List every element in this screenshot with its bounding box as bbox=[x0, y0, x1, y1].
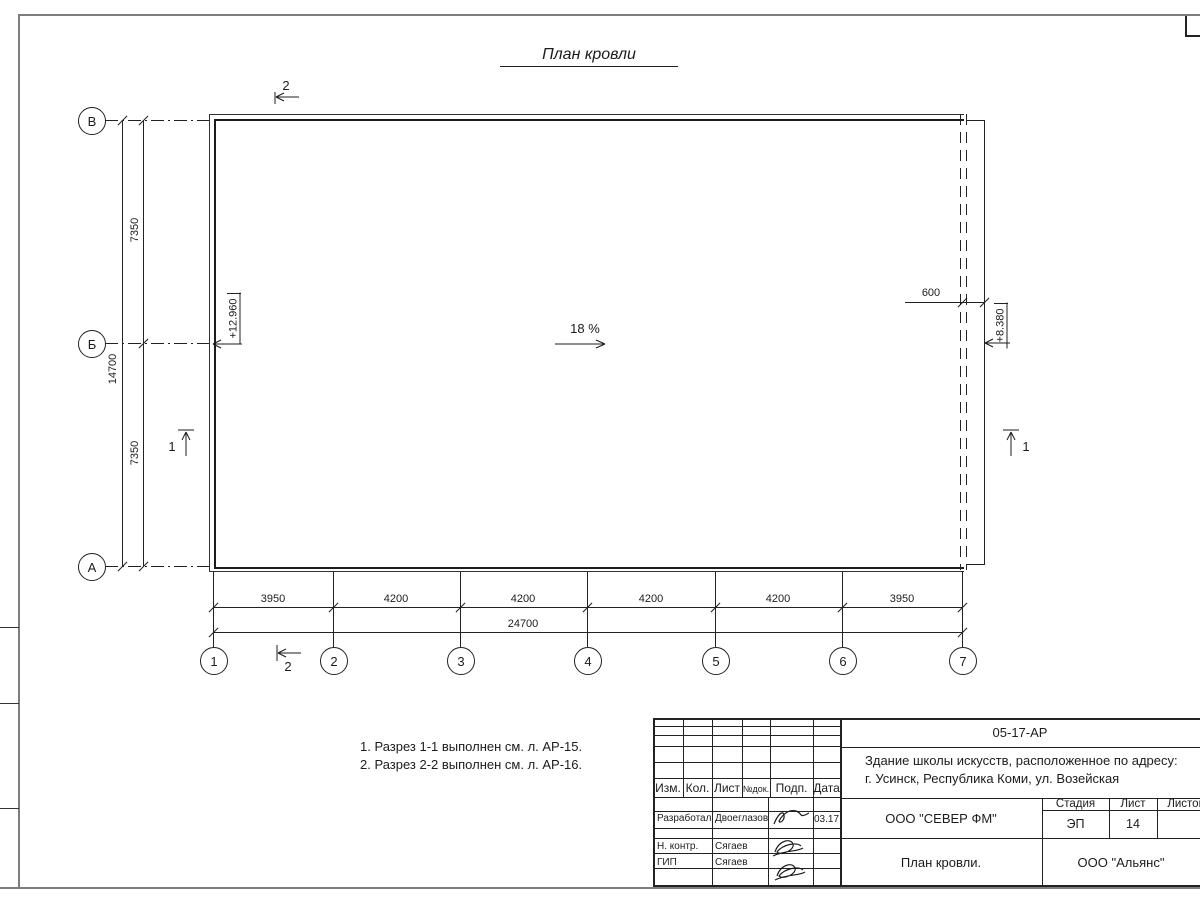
tb-role: Разработал bbox=[657, 813, 711, 824]
tb-line bbox=[653, 718, 1200, 720]
axis-bubble-6: 6 bbox=[829, 647, 857, 675]
tb-name: Двоеглазов bbox=[715, 813, 768, 824]
dim-value: 600 bbox=[911, 287, 951, 299]
dim-value: 7350 bbox=[129, 200, 141, 260]
axis-bubble-v: В bbox=[78, 107, 106, 135]
extension-line bbox=[842, 572, 843, 647]
title-block: Изм. Кол. Лист №док. Подп. Дата Разработ… bbox=[653, 718, 1200, 888]
dim-value: 3950 bbox=[872, 593, 932, 605]
tb-col-header: Дата bbox=[813, 781, 840, 795]
axis-label: Б bbox=[88, 337, 97, 352]
elevation-mark-bar bbox=[994, 303, 1008, 304]
tb-organization: ООО "СЕВЕР ФМ" bbox=[840, 811, 1042, 826]
frame-left bbox=[18, 14, 20, 888]
dim-value: 14700 bbox=[107, 334, 119, 404]
tb-line bbox=[653, 735, 840, 736]
section-mark-2-bottom: 2 bbox=[264, 641, 304, 673]
tb-col-header: Кол. bbox=[683, 781, 712, 795]
axis-bubble-4: 4 bbox=[574, 647, 602, 675]
axis-label: 3 bbox=[457, 654, 464, 669]
frame-top bbox=[18, 14, 1200, 16]
dim-line-left-total bbox=[122, 120, 123, 566]
tb-line bbox=[653, 797, 840, 798]
elevation-arrow-icon bbox=[983, 338, 1011, 348]
corner-box-bottom-line bbox=[1185, 35, 1200, 37]
dim-value: 24700 bbox=[488, 618, 558, 630]
tb-role: ГИП bbox=[657, 857, 677, 868]
axis-label: 7 bbox=[959, 654, 966, 669]
tb-sheet-label: Лист bbox=[1109, 798, 1157, 810]
slope-arrow-icon bbox=[553, 337, 611, 351]
tb-line bbox=[813, 718, 814, 885]
tb-line bbox=[653, 828, 840, 829]
tb-line bbox=[1042, 798, 1043, 885]
tb-contractor: ООО "Альянс" bbox=[1042, 855, 1200, 870]
tb-line bbox=[840, 747, 1200, 748]
extension-line bbox=[460, 572, 461, 647]
tb-sheet-title: План кровли. bbox=[840, 855, 1042, 870]
tb-line bbox=[1042, 810, 1200, 811]
tb-name: Сягаев bbox=[715, 857, 748, 868]
tb-col-header: №док. bbox=[742, 784, 770, 794]
dim-value: 4200 bbox=[748, 593, 808, 605]
lower-roof-top-edge bbox=[966, 120, 985, 121]
axis-label: 2 bbox=[330, 654, 337, 669]
axis-bubble-1: 1 bbox=[200, 647, 228, 675]
section-mark-2-top: 2 bbox=[262, 76, 302, 104]
tb-line bbox=[712, 718, 713, 885]
axis-label: 5 bbox=[712, 654, 719, 669]
tb-sheet-value: 14 bbox=[1109, 817, 1157, 831]
roof-hidden-edge-dashed bbox=[966, 114, 967, 570]
tb-name: Сягаев bbox=[715, 841, 748, 852]
frame-binding-mark bbox=[0, 808, 19, 809]
tb-col-header: Лист bbox=[712, 781, 742, 795]
frame-binding-mark bbox=[0, 627, 19, 628]
axis-line bbox=[105, 343, 209, 344]
tb-sheets-label: Листов bbox=[1157, 798, 1200, 810]
tb-stage-label: Стадия bbox=[1042, 798, 1109, 810]
slope-value: 18 % bbox=[560, 321, 610, 336]
corner-box-left-line bbox=[1185, 16, 1187, 36]
tb-line bbox=[653, 762, 840, 763]
section-label: 2 bbox=[284, 659, 291, 674]
tb-line bbox=[653, 838, 1200, 839]
elevation-arrow-icon bbox=[211, 339, 243, 349]
tb-line bbox=[653, 811, 840, 812]
tb-doc-number: 05-17-АР bbox=[840, 725, 1200, 740]
section-mark-1-right: 1 bbox=[1001, 424, 1035, 458]
frame-binding-mark bbox=[0, 703, 19, 704]
tb-line bbox=[653, 746, 840, 747]
notes-block: 1. Разрез 1-1 выполнен см. л. АР-15. 2. … bbox=[360, 738, 582, 774]
tb-project-line2: г. Усинск, Республика Коми, ул. Возейска… bbox=[865, 771, 1119, 786]
extension-line bbox=[213, 572, 214, 647]
tb-role: Н. контр. bbox=[657, 841, 698, 852]
dim-line-bottom-total bbox=[213, 632, 962, 633]
axis-label: В bbox=[88, 114, 97, 129]
dim-value: 7350 bbox=[129, 423, 141, 483]
axis-label: 4 bbox=[584, 654, 591, 669]
axis-label: 1 bbox=[210, 654, 217, 669]
axis-label: А bbox=[88, 560, 97, 575]
dim-value: 4200 bbox=[621, 593, 681, 605]
extension-line bbox=[962, 572, 963, 647]
drawing-title: План кровли bbox=[500, 46, 678, 67]
dim-value: 3950 bbox=[243, 593, 303, 605]
tb-line bbox=[653, 726, 840, 727]
note-line: 2. Разрез 2-2 выполнен см. л. АР-16. bbox=[360, 756, 582, 774]
section-label: 1 bbox=[1022, 439, 1029, 454]
dim-line-600 bbox=[905, 302, 985, 303]
tb-line bbox=[653, 718, 655, 887]
extension-line bbox=[587, 572, 588, 647]
axis-bubble-3: 3 bbox=[447, 647, 475, 675]
tb-col-header: Изм. bbox=[653, 781, 683, 795]
axis-bubble-a: А bbox=[78, 553, 106, 581]
elevation-mark-value: +12.960 bbox=[228, 293, 241, 345]
dim-value: 4200 bbox=[493, 593, 553, 605]
extension-line bbox=[715, 572, 716, 647]
tb-col-header: Подп. bbox=[770, 781, 813, 795]
signature-icon bbox=[767, 834, 809, 884]
axis-label: 6 bbox=[839, 654, 846, 669]
sheet: План кровли В Б А 7350 7350 14700 1 2 3 … bbox=[0, 0, 1200, 900]
tb-line bbox=[653, 853, 840, 854]
tb-line bbox=[653, 778, 840, 779]
section-mark-1-left: 1 bbox=[164, 424, 198, 458]
lower-roof-bottom-edge bbox=[966, 564, 985, 565]
extension-line bbox=[333, 572, 334, 647]
axis-bubble-b: Б bbox=[78, 330, 106, 358]
dim-value: 4200 bbox=[366, 593, 426, 605]
roof-hidden-edge-dashed bbox=[960, 114, 961, 570]
axis-bubble-5: 5 bbox=[702, 647, 730, 675]
tb-project-line1: Здание школы искусств, расположенное по … bbox=[865, 753, 1178, 768]
section-label: 1 bbox=[168, 439, 175, 454]
section-label: 2 bbox=[282, 78, 289, 93]
tb-line bbox=[653, 885, 1200, 887]
axis-bubble-7: 7 bbox=[949, 647, 977, 675]
axis-bubble-2: 2 bbox=[320, 647, 348, 675]
note-line: 1. Разрез 1-1 выполнен см. л. АР-15. bbox=[360, 738, 582, 756]
elevation-mark-bar bbox=[227, 293, 241, 294]
tb-line bbox=[653, 868, 840, 869]
tb-date: 03.17 bbox=[813, 814, 840, 825]
signature-icon bbox=[771, 804, 811, 830]
tb-stage-value: ЭП bbox=[1042, 817, 1109, 831]
